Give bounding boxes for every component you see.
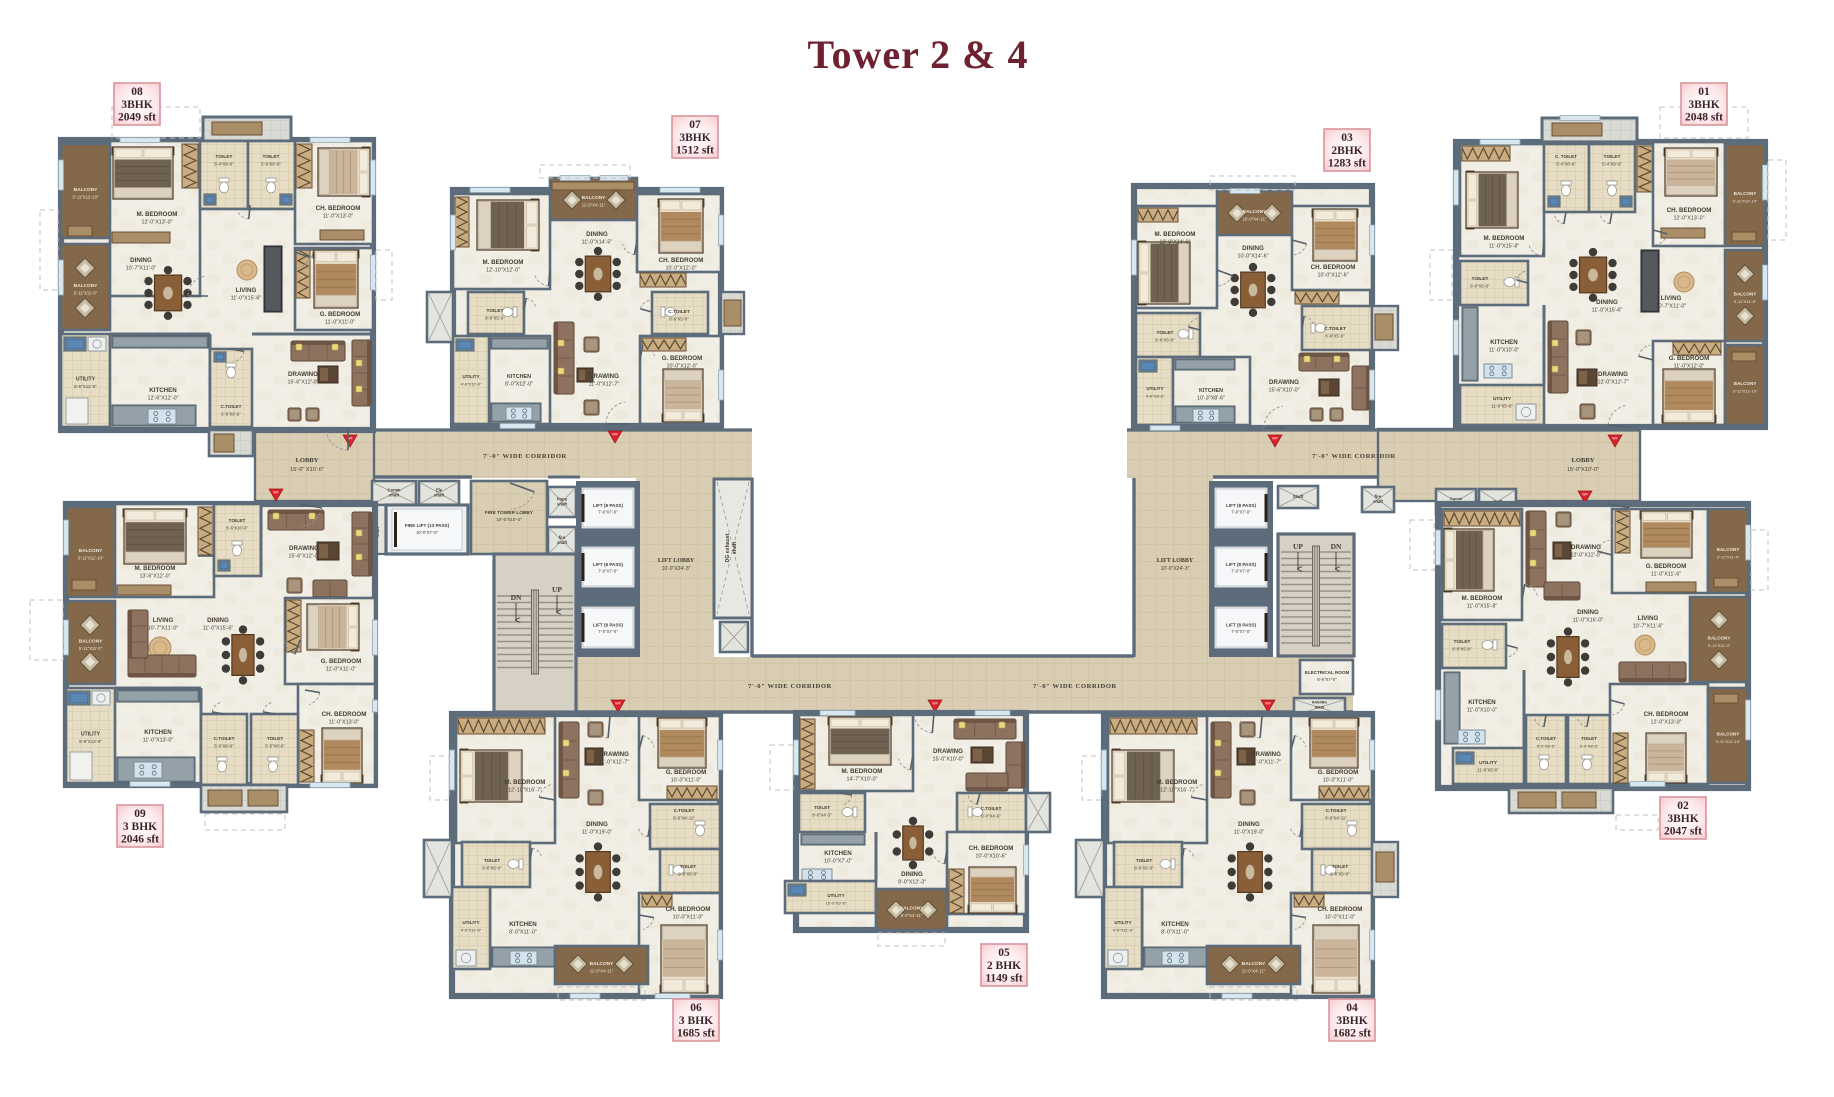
svg-text:10'-0"X14'-0": 10'-0"X14'-0" (1159, 240, 1190, 246)
svg-text:UP: UP (1293, 542, 1303, 551)
svg-text:02: 02 (1677, 800, 1689, 812)
svg-text:UTILITY: UTILITY (462, 920, 479, 925)
svg-text:5'-11"X11'-0": 5'-11"X11'-0" (1734, 299, 1757, 304)
svg-text:10'-0"X14'-6": 10'-0"X14'-6" (1237, 254, 1268, 260)
svg-text:BALCONY: BALCONY (1734, 292, 1757, 297)
svg-text:11'-0"X15'-6": 11'-0"X15'-6" (1592, 308, 1623, 314)
svg-text:11'-0"X13'-0": 11'-0"X13'-0" (329, 720, 360, 726)
svg-text:10'-7"X11'-0": 10'-7"X11'-0" (148, 626, 179, 632)
svg-text:3 BHK: 3 BHK (123, 821, 157, 833)
svg-text:shaft: shaft (434, 493, 445, 498)
svg-text:KITCHEN: KITCHEN (1161, 921, 1189, 928)
svg-text:UTILITY: UTILITY (1493, 396, 1512, 402)
svg-text:CH. BEDROOM: CH. BEDROOM (969, 845, 1014, 852)
svg-text:1283 sft: 1283 sft (1328, 158, 1366, 170)
svg-text:BALCONY: BALCONY (79, 639, 104, 645)
svg-text:TOILET: TOILET (1604, 154, 1621, 160)
svg-text:CH. BEDROOM: CH. BEDROOM (1644, 711, 1689, 718)
svg-text:7'-0"X7'-0": 7'-0"X7'-0" (1231, 629, 1251, 634)
svg-text:C. TOILET: C. TOILET (1555, 154, 1577, 159)
svg-text:7'-0"X7'-0": 7'-0"X7'-0" (1231, 510, 1251, 515)
svg-text:7'-0"X7'-0": 7'-0"X7'-0" (1231, 569, 1251, 574)
svg-text:C.TOILET: C.TOILET (1326, 808, 1347, 813)
svg-text:8'-6"X7'-0": 8'-6"X7'-0" (1317, 677, 1337, 682)
svg-text:UTILITY: UTILITY (827, 893, 844, 898)
svg-text:5'-0"X8'-6": 5'-0"X8'-6" (1537, 744, 1556, 749)
svg-text:LIFT (8 PASS): LIFT (8 PASS) (593, 503, 623, 508)
svg-text:LIVING: LIVING (236, 287, 257, 294)
svg-text:DG exhaust: DG exhaust (725, 533, 731, 562)
svg-text:04: 04 (1346, 1002, 1358, 1014)
svg-text:8'-0"X12'-0": 8'-0"X12'-0" (505, 382, 533, 388)
svg-text:TOILET: TOILET (814, 805, 830, 810)
svg-text:8'-6"X5'-0": 8'-6"X5'-0" (482, 866, 502, 871)
svg-text:TOILET: TOILET (1472, 276, 1489, 282)
svg-text:Tower 2 & 4: Tower 2 & 4 (808, 32, 1029, 77)
svg-text:15'-6"X10'-0": 15'-6"X10'-0" (1268, 388, 1299, 394)
svg-text:13'-6"X12'-0": 13'-6"X12'-0" (139, 574, 170, 580)
svg-text:shaft: shaft (389, 493, 400, 498)
svg-text:BALCONY: BALCONY (1708, 636, 1731, 641)
svg-text:UTILITY: UTILITY (1479, 760, 1498, 766)
svg-text:M. BEDROOM: M. BEDROOM (1155, 231, 1196, 238)
svg-text:WF: WF (1265, 702, 1270, 706)
svg-text:DN: DN (511, 593, 522, 602)
svg-text:WF: WF (615, 702, 620, 706)
svg-text:M. BEDROOM: M. BEDROOM (137, 211, 178, 218)
svg-text:BALCONY: BALCONY (79, 548, 104, 554)
svg-text:WF: WF (1582, 493, 1587, 497)
svg-text:1512 sft: 1512 sft (676, 145, 714, 157)
svg-text:3'-11"X12'-10": 3'-11"X12'-10" (1733, 199, 1759, 204)
svg-text:CH. BEDROOM: CH. BEDROOM (322, 711, 367, 718)
svg-text:FIRE LIFT (13 PASS): FIRE LIFT (13 PASS) (405, 523, 450, 528)
svg-text:10'-0"X11'-0": 10'-0"X11'-0" (671, 778, 702, 784)
svg-text:shaft: shaft (557, 502, 568, 507)
svg-text:10'-0"X12'-6": 10'-0"X12'-6" (1317, 273, 1348, 279)
svg-text:DRAWING: DRAWING (1251, 751, 1281, 758)
svg-text:WF: WF (1272, 437, 1277, 441)
svg-text:DRAWING: DRAWING (289, 545, 319, 552)
svg-text:DINING: DINING (1577, 609, 1599, 616)
svg-text:LIFT LOBBY: LIFT LOBBY (1157, 558, 1194, 564)
svg-text:CH. BEDROOM: CH. BEDROOM (1667, 207, 1712, 214)
svg-text:5'-6"X8'-6": 5'-6"X8'-6" (221, 412, 241, 417)
svg-text:10'-0"X7'-0": 10'-0"X7'-0" (416, 530, 438, 535)
svg-text:CH. BEDROOM: CH. BEDROOM (1318, 906, 1363, 913)
svg-text:10'-0"X7'-0": 10'-0"X7'-0" (824, 859, 852, 865)
svg-text:11'-0"X4'-11": 11'-0"X4'-11" (590, 969, 614, 974)
svg-text:DRAWING: DRAWING (1571, 544, 1601, 551)
svg-text:WF: WF (612, 433, 617, 437)
svg-text:C.TOILET: C.TOILET (214, 736, 235, 741)
svg-text:7'-0" WIDE CORRIDOR: 7'-0" WIDE CORRIDOR (748, 683, 832, 690)
svg-text:TOILET: TOILET (1332, 864, 1348, 869)
svg-text:TOILET: TOILET (680, 864, 696, 869)
svg-text:WF: WF (932, 702, 937, 706)
svg-text:G. BEDROOM: G. BEDROOM (321, 658, 362, 665)
svg-text:M. BEDROOM: M. BEDROOM (1484, 235, 1525, 242)
svg-text:LOBBY: LOBBY (295, 457, 318, 464)
svg-text:TOILET: TOILET (263, 154, 280, 160)
svg-text:5'-4"X8'-6": 5'-4"X8'-6" (1602, 162, 1622, 167)
svg-text:LIFT (8 PASS): LIFT (8 PASS) (593, 623, 623, 628)
svg-text:12'-10"X16'-7": 12'-10"X16'-7" (508, 788, 542, 794)
svg-text:11'-0"X5'-6": 11'-0"X5'-6" (1491, 404, 1513, 409)
svg-text:7'-0" WIDE CORRIDOR: 7'-0" WIDE CORRIDOR (1033, 683, 1117, 690)
svg-text:11'-0"X15'-8": 11'-0"X15'-8" (1489, 244, 1520, 250)
svg-text:12'-10"X16'-7": 12'-10"X16'-7" (1160, 788, 1194, 794)
svg-text:CH. BEDROOM: CH. BEDROOM (666, 906, 711, 913)
svg-text:7'-0"X7'-0": 7'-0"X7'-0" (598, 510, 618, 515)
svg-text:LIFT (8 PASS): LIFT (8 PASS) (1226, 623, 1256, 628)
svg-text:UTILITY: UTILITY (1114, 920, 1131, 925)
svg-text:5'-5"X8'-6": 5'-5"X8'-6" (265, 744, 285, 749)
svg-text:1682 sft: 1682 sft (1333, 1028, 1371, 1040)
svg-text:10'-0"X12'-0": 10'-0"X12'-0" (665, 266, 696, 272)
svg-text:DN: DN (1331, 542, 1342, 551)
svg-text:8'-0"X5'-0": 8'-0"X5'-0" (1470, 284, 1490, 289)
svg-text:05: 05 (998, 947, 1010, 959)
svg-text:8'-0"X4'-3": 8'-0"X4'-3" (812, 813, 832, 818)
svg-text:11'-0"X16'-0": 11'-0"X16'-0" (1573, 618, 1604, 624)
svg-text:C.TOILET: C.TOILET (674, 808, 695, 813)
svg-text:KITCHEN: KITCHEN (824, 850, 852, 857)
svg-text:10'-0"X10'-6": 10'-0"X10'-6" (975, 854, 1006, 860)
svg-text:DINING: DINING (1242, 245, 1264, 252)
svg-text:7'-0" WIDE CORRIDOR: 7'-0" WIDE CORRIDOR (483, 453, 567, 460)
svg-text:LOBBY: LOBBY (1571, 457, 1594, 464)
svg-text:11'-0"X19'-0": 11'-0"X19'-0" (1234, 830, 1265, 836)
svg-text:11'-0"X11'-7": 11'-0"X11'-7" (1251, 760, 1281, 766)
svg-text:G. BEDROOM: G. BEDROOM (1318, 769, 1359, 776)
svg-text:DRAWING: DRAWING (589, 373, 619, 380)
svg-text:9'-0"X12'-3": 9'-0"X12'-3" (898, 880, 926, 886)
svg-text:12'-0"X12'-0": 12'-0"X12'-0" (1570, 553, 1601, 559)
svg-text:8'-0"X11'-0": 8'-0"X11'-0" (1161, 930, 1189, 936)
svg-text:DINING: DINING (207, 617, 229, 624)
svg-text:M. BEDROOM: M. BEDROOM (135, 565, 176, 572)
svg-text:Shaft: Shaft (1293, 494, 1304, 499)
svg-text:11'-0"X10'-0": 11'-0"X10'-0" (1467, 708, 1498, 714)
svg-text:10'-0"X11'-0": 10'-0"X11'-0" (1323, 778, 1354, 784)
svg-text:5'-6"X10'-6": 5'-6"X10'-6" (226, 526, 248, 531)
svg-text:MAIN: MAIN (1315, 706, 1325, 710)
svg-text:shaft: shaft (1373, 499, 1384, 504)
svg-text:15'-0"X10'-0": 15'-0"X10'-0" (1567, 467, 1599, 473)
svg-text:2 BHK: 2 BHK (987, 960, 1021, 972)
svg-text:3BHK: 3BHK (1336, 1015, 1367, 1027)
svg-text:CH. BEDROOM: CH. BEDROOM (316, 205, 361, 212)
svg-text:8'-6"X5'-0": 8'-6"X5'-0" (1155, 338, 1175, 343)
svg-text:BALCONY: BALCONY (1734, 191, 1757, 196)
svg-text:3'-11"X11'-10": 3'-11"X11'-10" (1733, 389, 1758, 394)
svg-text:11'-0"X4'-11": 11'-0"X4'-11" (582, 203, 606, 208)
svg-text:DRAWING: DRAWING (1598, 371, 1628, 378)
svg-text:12'-0"X12'-7": 12'-0"X12'-7" (1597, 380, 1628, 386)
svg-text:ELECTRICAL ROOM: ELECTRICAL ROOM (1305, 670, 1350, 675)
svg-text:C.TOILET: C.TOILET (1536, 736, 1556, 741)
svg-text:1149 sft: 1149 sft (985, 973, 1023, 985)
svg-text:10'-7"X11'-6": 10'-7"X11'-6" (1633, 624, 1664, 630)
svg-text:5'-6"X8'-6": 5'-6"X8'-6" (214, 744, 234, 749)
svg-text:8'-6"X4'-11": 8'-6"X4'-11" (673, 816, 695, 821)
svg-text:BALCONY: BALCONY (1717, 547, 1740, 552)
svg-text:9'-0"X4'-6": 9'-0"X4'-6" (981, 814, 1001, 819)
svg-text:3'-11"X12'-10": 3'-11"X12'-10" (72, 195, 99, 200)
svg-text:11'-0"X12'-0": 11'-0"X12'-0" (1674, 364, 1705, 370)
svg-text:8'-6"X5'-0": 8'-6"X5'-0" (669, 317, 689, 322)
svg-text:5'-4"X8'-6": 5'-4"X8'-6" (1556, 162, 1576, 167)
svg-text:10'-0"X11'-0": 10'-0"X11'-0" (673, 915, 704, 921)
svg-text:10'-3"X8'-6": 10'-3"X8'-6" (1197, 396, 1225, 402)
svg-text:11'-0"X11'-6": 11'-0"X11'-6" (1651, 572, 1681, 578)
svg-text:10'-0"X11'-0": 10'-0"X11'-0" (1325, 915, 1356, 921)
svg-text:11'-0"X12'-7": 11'-0"X12'-7" (589, 382, 620, 388)
svg-text:LIVING: LIVING (153, 617, 174, 624)
svg-text:3BHK: 3BHK (1667, 813, 1698, 825)
svg-text:2046 sft: 2046 sft (121, 834, 159, 846)
svg-text:3BHK: 3BHK (1688, 99, 1719, 111)
svg-text:BALCONY: BALCONY (1242, 961, 1267, 967)
svg-text:2BHK: 2BHK (1331, 145, 1362, 157)
svg-text:TOILET: TOILET (484, 858, 500, 863)
svg-text:UP: UP (552, 585, 562, 594)
svg-text:8'-0"X4'-11": 8'-0"X4'-11" (901, 913, 923, 918)
svg-text:5'-11"X11'-0": 5'-11"X11'-0" (1708, 643, 1731, 648)
svg-text:5'-11"X11'-0": 5'-11"X11'-0" (74, 291, 98, 296)
svg-text:G. BEDROOM: G. BEDROOM (1669, 355, 1710, 362)
svg-text:8'-6"X5'-0": 8'-6"X5'-0" (678, 872, 698, 877)
svg-text:11'-0"X14'-5": 11'-0"X14'-5" (582, 240, 613, 246)
svg-text:10'-0"X24'-3": 10'-0"X24'-3" (662, 566, 691, 572)
svg-text:KITCHEN: KITCHEN (149, 387, 177, 394)
svg-text:UTILITY: UTILITY (81, 732, 101, 738)
svg-text:LIFT (8 PASS): LIFT (8 PASS) (593, 562, 623, 567)
svg-text:M. BEDROOM: M. BEDROOM (1157, 779, 1198, 786)
svg-text:BALCONY: BALCONY (1734, 381, 1757, 386)
svg-text:M. BEDROOM: M. BEDROOM (483, 259, 524, 266)
svg-text:4'-6"X8'-6": 4'-6"X8'-6" (1146, 394, 1165, 399)
svg-text:KITCHEN: KITCHEN (1199, 388, 1223, 394)
svg-text:11'-0"X15'-6": 11'-0"X15'-6" (203, 626, 234, 632)
svg-text:8'-6"X5'-0": 8'-6"X5'-0" (1330, 872, 1350, 877)
svg-text:11'-0"X4'-11": 11'-0"X4'-11" (1242, 969, 1266, 974)
svg-text:15'-6" X10'-0": 15'-6" X10'-0" (290, 467, 324, 473)
svg-text:TOILET: TOILET (1581, 736, 1597, 741)
svg-text:C.TOILET: C.TOILET (1324, 326, 1346, 332)
svg-text:11'-0"X19'-0": 11'-0"X19'-0" (582, 830, 613, 836)
svg-text:11'-0"X13'-0": 11'-0"X13'-0" (323, 214, 354, 220)
svg-text:M. BEDROOM: M. BEDROOM (1462, 595, 1503, 602)
svg-text:15'-6"X12'-0": 15'-6"X12'-0" (288, 554, 319, 560)
svg-text:RAINING: RAINING (1312, 701, 1327, 705)
svg-text:UTILITY: UTILITY (462, 374, 479, 379)
svg-text:7'-0"X7'-0": 7'-0"X7'-0" (598, 569, 618, 574)
svg-text:11'-0"X15'-6": 11'-0"X15'-6" (231, 296, 262, 302)
svg-text:BALCONY: BALCONY (74, 283, 99, 289)
svg-text:LIFT (8 PASS): LIFT (8 PASS) (1226, 562, 1256, 567)
svg-text:TOILET: TOILET (1157, 330, 1174, 336)
svg-text:DINING: DINING (1238, 821, 1260, 828)
svg-text:11'-0"X10'-0": 11'-0"X10'-0" (1489, 348, 1520, 354)
svg-text:TOILET: TOILET (229, 518, 246, 524)
svg-text:10'-0"X24'-3": 10'-0"X24'-3" (1161, 566, 1190, 572)
svg-text:DRAWING: DRAWING (933, 748, 963, 755)
svg-text:15'-6"X12'-0": 15'-6"X12'-0" (287, 380, 318, 386)
svg-text:UTILITY: UTILITY (76, 377, 96, 383)
svg-text:DINING: DINING (130, 257, 152, 264)
svg-text:11'-0"X11'-0": 11'-0"X11'-0" (325, 320, 355, 326)
svg-text:G. BEDROOM: G. BEDROOM (320, 311, 361, 318)
svg-text:DRAWING: DRAWING (288, 371, 318, 378)
svg-text:7'-0"X7'-0": 7'-0"X7'-0" (598, 629, 618, 634)
svg-text:10'-0"X12'-0": 10'-0"X12'-0" (666, 364, 697, 370)
svg-text:4'-6"X11'-0": 4'-6"X11'-0" (461, 928, 482, 933)
svg-text:C.TOILET: C.TOILET (668, 309, 690, 315)
svg-text:08: 08 (131, 86, 143, 98)
svg-text:3'-11"X11'-10": 3'-11"X11'-10" (78, 556, 104, 561)
svg-text:10'-0"X4'-11": 10'-0"X4'-11" (1243, 217, 1267, 222)
svg-text:TOILET: TOILET (216, 154, 233, 160)
svg-text:FIRE TOWER LOBBY: FIRE TOWER LOBBY (485, 510, 534, 516)
svg-text:LIFT (8 PASS): LIFT (8 PASS) (1226, 503, 1256, 508)
svg-text:CH. BEDROOM: CH. BEDROOM (1311, 264, 1356, 271)
svg-text:M. BEDROOM: M. BEDROOM (505, 779, 546, 786)
svg-text:1685 sft: 1685 sft (677, 1028, 715, 1040)
svg-text:2048 sft: 2048 sft (1685, 112, 1723, 124)
svg-text:4'-6"X11'-0": 4'-6"X11'-0" (1113, 928, 1134, 933)
svg-text:11'-0"X11'-7": 11'-0"X11'-7" (599, 760, 629, 766)
svg-text:UTILITY: UTILITY (1146, 386, 1163, 391)
svg-text:LIVING: LIVING (1638, 615, 1659, 622)
svg-text:BALCONY: BALCONY (74, 187, 99, 193)
svg-text:BALCONY: BALCONY (900, 906, 925, 912)
svg-text:3'-11"X11'-4": 3'-11"X11'-4" (1717, 555, 1740, 560)
svg-text:01: 01 (1698, 86, 1710, 98)
svg-text:LIVING: LIVING (1661, 295, 1682, 302)
svg-text:KITCHEN: KITCHEN (1490, 339, 1518, 346)
svg-text:10'-6"X10'-0": 10'-6"X10'-0" (496, 517, 522, 522)
svg-text:KITCHEN: KITCHEN (1468, 699, 1496, 706)
svg-text:12'-10"X12'-0": 12'-10"X12'-0" (486, 268, 520, 274)
svg-text:06: 06 (690, 1002, 702, 1014)
svg-text:4'-6"X12'-0": 4'-6"X12'-0" (461, 382, 482, 387)
svg-text:LIFT LOBBY: LIFT LOBBY (658, 558, 695, 564)
svg-text:CH. BEDROOM: CH. BEDROOM (659, 257, 704, 264)
svg-text:DRAWING: DRAWING (599, 751, 629, 758)
svg-text:11'-0"X15'-8": 11'-0"X15'-8" (1467, 604, 1498, 610)
svg-text:5'-4"X8'-6": 5'-4"X8'-6" (1580, 744, 1599, 749)
svg-text:WF: WF (1612, 437, 1617, 441)
svg-text:8'-6"X5'-0": 8'-6"X5'-0" (1325, 334, 1345, 339)
svg-text:14'-7"X10'-0": 14'-7"X10'-0" (846, 777, 877, 783)
svg-text:DINING: DINING (1596, 299, 1618, 306)
svg-text:WF: WF (273, 491, 278, 495)
svg-text:TOILET: TOILET (1454, 639, 1471, 645)
svg-text:KITCHEN: KITCHEN (144, 729, 172, 736)
svg-text:2047 sft: 2047 sft (1664, 826, 1702, 838)
svg-text:5'-6"X13'-0": 5'-6"X13'-0" (79, 739, 102, 744)
svg-text:03: 03 (1341, 132, 1353, 144)
svg-text:8'-0"X11'-0": 8'-0"X11'-0" (509, 930, 537, 936)
svg-text:11'-0"X5'-0": 11'-0"X5'-0" (1477, 768, 1499, 773)
svg-text:BALCONY: BALCONY (1717, 732, 1740, 737)
svg-text:TOILET: TOILET (487, 308, 504, 314)
svg-text:8'-6"X5'-0": 8'-6"X5'-0" (485, 316, 505, 321)
svg-text:10'-7"X11'-0": 10'-7"X11'-0" (1656, 304, 1687, 310)
svg-text:shaft: shaft (732, 542, 738, 555)
svg-text:5'-6"X12'-0": 5'-6"X12'-0" (74, 384, 97, 389)
svg-text:BALCONY: BALCONY (582, 195, 607, 201)
svg-text:C.TOILET: C.TOILET (981, 806, 1002, 811)
svg-text:DRAWING: DRAWING (1269, 379, 1299, 386)
svg-text:C.TOILET: C.TOILET (221, 404, 242, 409)
svg-text:5'-4"X8'-6": 5'-4"X8'-6" (214, 162, 234, 167)
svg-text:KITCHEN: KITCHEN (509, 921, 537, 928)
svg-text:11'-0"X11'-0": 11'-0"X11'-0" (326, 667, 356, 673)
svg-text:KITCHEN: KITCHEN (507, 374, 531, 380)
svg-text:8'-0"X5'-0": 8'-0"X5'-0" (1452, 647, 1472, 652)
svg-text:BALCONY: BALCONY (1243, 209, 1268, 215)
svg-text:8'-6"X5'-0": 8'-6"X5'-0" (1134, 866, 1154, 871)
svg-text:G. BEDROOM: G. BEDROOM (1646, 563, 1687, 570)
svg-text:15'-0"X10'-0": 15'-0"X10'-0" (932, 757, 963, 763)
svg-text:DINING: DINING (586, 231, 608, 238)
svg-text:M. BEDROOM: M. BEDROOM (842, 768, 883, 775)
svg-text:12'-0"X13'-0": 12'-0"X13'-0" (141, 220, 172, 226)
svg-text:12'-6"X12'-0": 12'-6"X12'-0" (147, 396, 178, 402)
svg-text:3BHK: 3BHK (679, 132, 710, 144)
svg-text:7'-0" WIDE CORRIDOR: 7'-0" WIDE CORRIDOR (1312, 453, 1396, 460)
svg-text:12'-0"X13'-0": 12'-0"X13'-0" (1650, 720, 1681, 726)
svg-text:07: 07 (689, 119, 701, 131)
svg-text:5'-11"X11'-0": 5'-11"X11'-0" (79, 646, 103, 651)
svg-text:DINING: DINING (901, 871, 923, 878)
svg-text:8'-6"X4'-11": 8'-6"X4'-11" (1325, 816, 1347, 821)
svg-text:BALCONY: BALCONY (590, 961, 615, 967)
svg-text:3 BHK: 3 BHK (679, 1015, 713, 1027)
svg-text:TOILET: TOILET (1136, 858, 1152, 863)
svg-text:3'-11"X12'-10": 3'-11"X12'-10" (1716, 739, 1742, 744)
svg-text:G. BEDROOM: G. BEDROOM (666, 769, 707, 776)
svg-text:G. BEDROOM: G. BEDROOM (662, 355, 703, 362)
svg-text:TOILET: TOILET (267, 736, 283, 741)
svg-text:10'-7"X11'-0": 10'-7"X11'-0" (126, 266, 157, 272)
svg-text:11'-0"X13'-0": 11'-0"X13'-0" (143, 738, 174, 744)
svg-text:DINING: DINING (586, 821, 608, 828)
svg-text:10'-0"X3'-6": 10'-0"X3'-6" (826, 901, 847, 906)
svg-text:12'-0"X13'-0": 12'-0"X13'-0" (1673, 216, 1704, 222)
svg-text:3BHK: 3BHK (121, 99, 152, 111)
svg-text:5'-6"X8'-6": 5'-6"X8'-6" (261, 162, 281, 167)
svg-text:shaft: shaft (557, 540, 568, 545)
svg-text:09: 09 (134, 808, 146, 820)
svg-text:2049 sft: 2049 sft (118, 112, 156, 124)
